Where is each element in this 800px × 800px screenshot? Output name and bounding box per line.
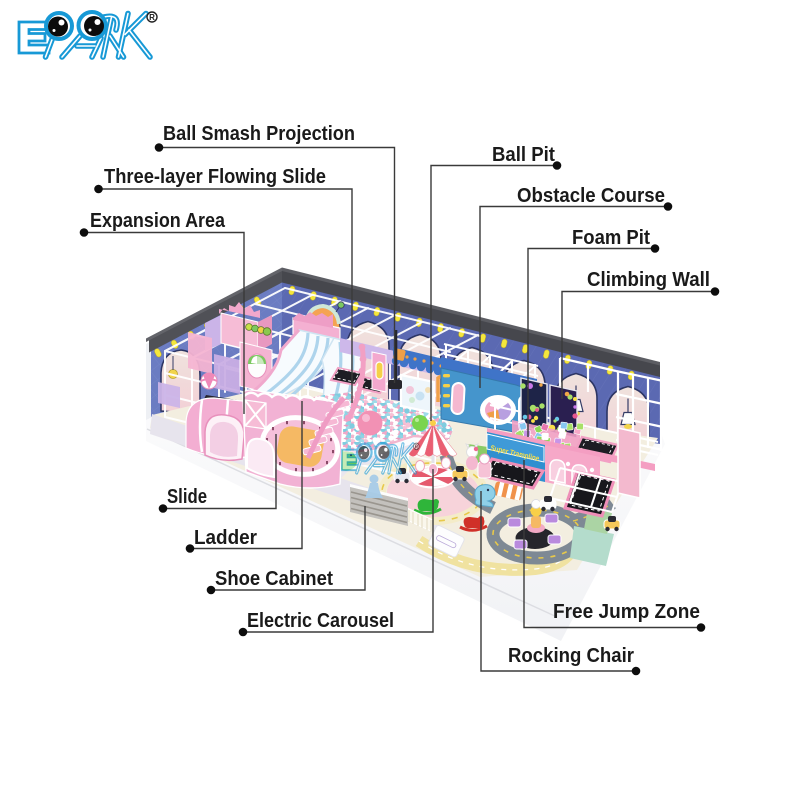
svg-text:Obstacle Course: Obstacle Course bbox=[517, 185, 665, 207]
svg-text:Electric Carousel: Electric Carousel bbox=[247, 610, 394, 632]
svg-text:Free Jump Zone: Free Jump Zone bbox=[553, 601, 700, 623]
svg-text:Ball Pit: Ball Pit bbox=[492, 144, 555, 166]
svg-text:Slide: Slide bbox=[167, 486, 207, 508]
svg-text:Ladder: Ladder bbox=[194, 527, 257, 549]
svg-text:Shoe Cabinet: Shoe Cabinet bbox=[215, 568, 333, 590]
svg-text:Expansion Area: Expansion Area bbox=[90, 210, 226, 232]
svg-text:Foam Pit: Foam Pit bbox=[572, 227, 650, 249]
svg-text:Rocking Chair: Rocking Chair bbox=[508, 645, 634, 667]
svg-text:Ball Smash Projection: Ball Smash Projection bbox=[163, 123, 355, 145]
svg-text:Climbing Wall: Climbing Wall bbox=[587, 269, 710, 291]
svg-text:Three-layer Flowing Slide: Three-layer Flowing Slide bbox=[104, 166, 326, 188]
